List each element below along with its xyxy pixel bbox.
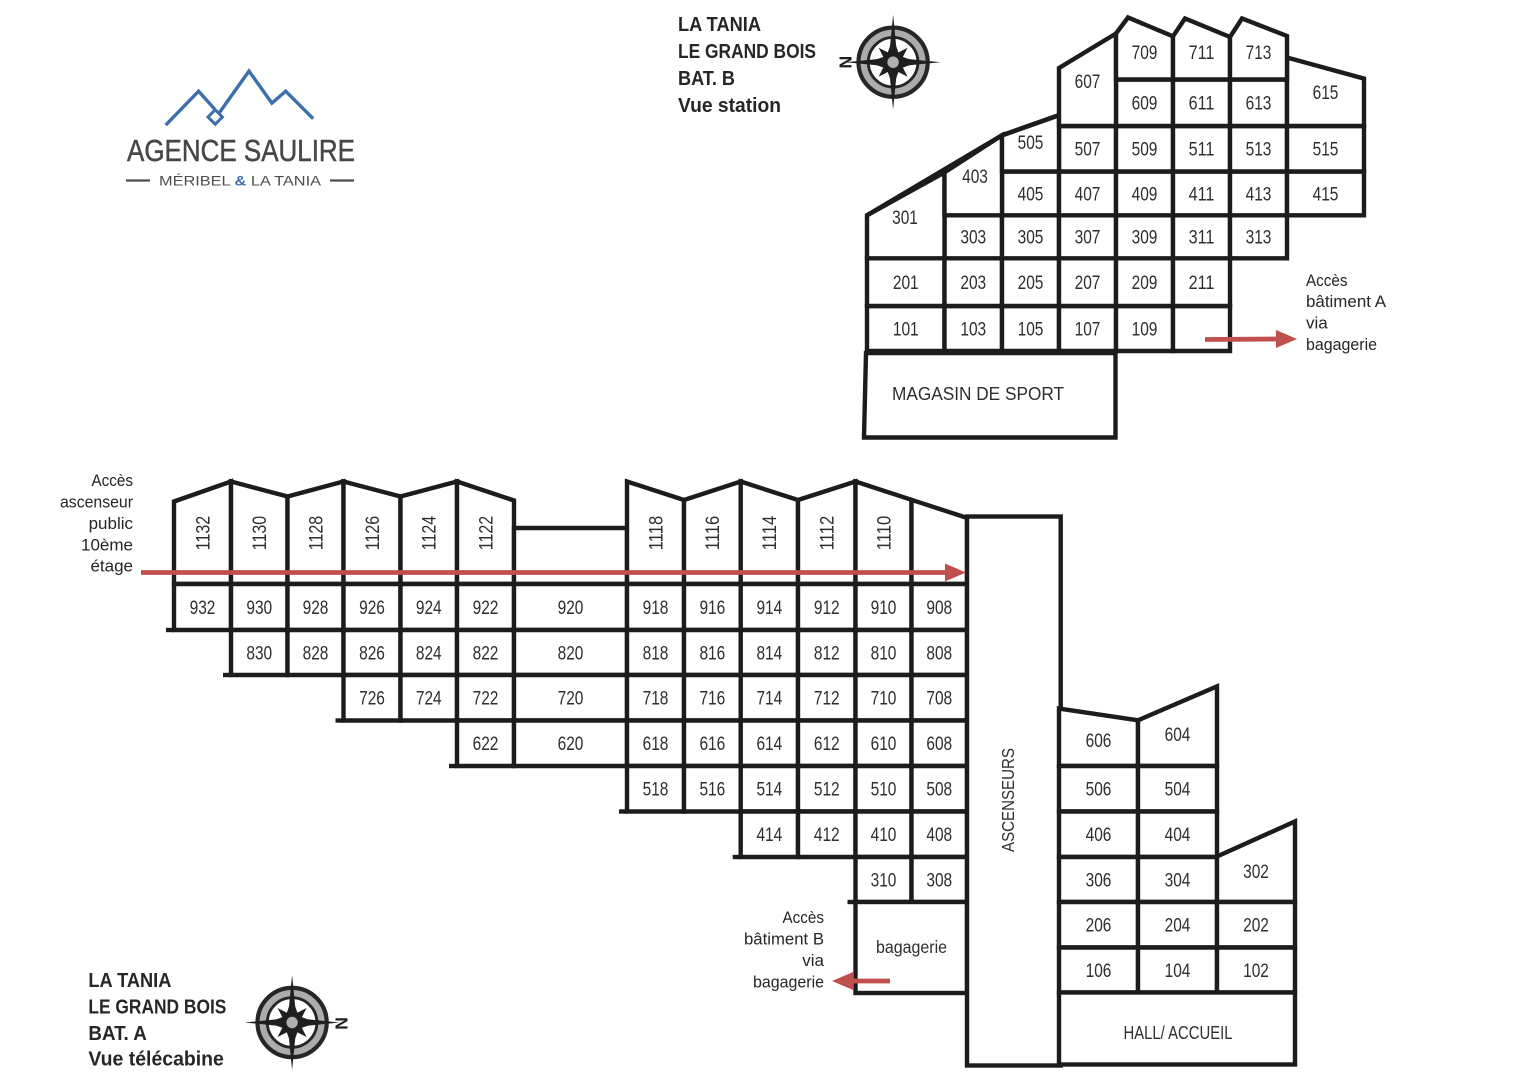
svg-text:via: via	[1306, 314, 1328, 333]
svg-text:BAT. B: BAT. B	[678, 67, 735, 90]
svg-text:508: 508	[926, 780, 952, 801]
svg-text:510: 510	[871, 780, 897, 801]
svg-text:726: 726	[359, 689, 385, 710]
svg-text:405: 405	[1018, 184, 1044, 205]
svg-text:714: 714	[756, 689, 782, 710]
svg-text:513: 513	[1246, 140, 1272, 161]
svg-text:1130: 1130	[250, 516, 271, 550]
svg-text:908: 908	[926, 598, 952, 619]
svg-text:830: 830	[246, 643, 272, 664]
svg-text:718: 718	[643, 689, 669, 710]
svg-text:609: 609	[1132, 94, 1158, 115]
svg-text:407: 407	[1075, 184, 1101, 205]
svg-text:1116: 1116	[703, 516, 724, 550]
svg-text:720: 720	[558, 689, 584, 710]
svg-text:810: 810	[871, 643, 897, 664]
svg-text:ascenseur: ascenseur	[60, 493, 133, 512]
svg-text:607: 607	[1075, 72, 1101, 93]
svg-text:LE GRAND BOIS: LE GRAND BOIS	[88, 996, 226, 1019]
svg-text:614: 614	[756, 734, 782, 755]
svg-text:LE GRAND BOIS: LE GRAND BOIS	[678, 40, 816, 63]
svg-text:301: 301	[892, 208, 918, 229]
svg-text:505: 505	[1018, 133, 1044, 154]
svg-text:412: 412	[814, 825, 840, 846]
svg-text:101: 101	[893, 319, 919, 340]
svg-text:211: 211	[1189, 273, 1215, 294]
svg-text:311: 311	[1189, 228, 1215, 249]
svg-text:410: 410	[871, 825, 897, 846]
svg-text:étage: étage	[90, 557, 133, 576]
svg-text:102: 102	[1243, 961, 1269, 982]
svg-text:202: 202	[1243, 916, 1269, 937]
svg-text:924: 924	[416, 598, 442, 619]
svg-text:507: 507	[1075, 140, 1101, 161]
svg-text:ASCENSEURS: ASCENSEURS	[998, 748, 1018, 852]
svg-text:207: 207	[1075, 273, 1101, 294]
svg-text:920: 920	[558, 598, 584, 619]
svg-text:201: 201	[893, 273, 919, 294]
svg-text:912: 912	[814, 598, 840, 619]
svg-text:622: 622	[473, 734, 499, 755]
svg-text:403: 403	[962, 167, 988, 188]
svg-text:814: 814	[756, 643, 782, 664]
svg-text:MÉRIBEL & LA TANIA: MÉRIBEL & LA TANIA	[159, 174, 321, 189]
svg-text:606: 606	[1086, 731, 1112, 752]
svg-text:724: 724	[416, 689, 442, 710]
svg-text:828: 828	[303, 643, 329, 664]
svg-text:914: 914	[756, 598, 782, 619]
svg-text:305: 305	[1018, 228, 1044, 249]
svg-text:10ème: 10ème	[81, 536, 133, 555]
svg-text:309: 309	[1132, 228, 1158, 249]
svg-text:N: N	[332, 1017, 352, 1030]
svg-text:511: 511	[1189, 140, 1215, 161]
svg-text:bâtiment A: bâtiment A	[1306, 292, 1387, 311]
svg-text:611: 611	[1189, 94, 1215, 115]
svg-text:616: 616	[699, 734, 725, 755]
svg-text:Vue télécabine: Vue télécabine	[88, 1048, 224, 1071]
svg-text:506: 506	[1086, 780, 1112, 801]
svg-text:310: 310	[871, 870, 897, 891]
svg-text:515: 515	[1313, 140, 1339, 161]
svg-text:1126: 1126	[363, 516, 384, 550]
svg-text:404: 404	[1165, 825, 1191, 846]
svg-text:105: 105	[1018, 319, 1044, 340]
svg-text:1114: 1114	[760, 515, 781, 550]
svg-text:bagagerie: bagagerie	[1306, 335, 1377, 354]
svg-text:106: 106	[1086, 961, 1112, 982]
svg-text:910: 910	[871, 598, 897, 619]
svg-text:612: 612	[814, 734, 840, 755]
svg-text:bagagerie: bagagerie	[753, 973, 824, 992]
svg-text:509: 509	[1132, 140, 1158, 161]
svg-text:313: 313	[1246, 228, 1272, 249]
svg-text:604: 604	[1165, 725, 1191, 746]
svg-text:722: 722	[473, 689, 499, 710]
svg-text:BAT. A: BAT. A	[88, 1022, 147, 1045]
svg-text:512: 512	[814, 780, 840, 801]
svg-text:818: 818	[643, 643, 669, 664]
svg-text:709: 709	[1132, 43, 1158, 64]
svg-text:1128: 1128	[306, 516, 327, 550]
svg-text:308: 308	[926, 870, 952, 891]
svg-text:1112: 1112	[818, 516, 839, 550]
svg-text:608: 608	[926, 734, 952, 755]
svg-text:1122: 1122	[476, 516, 497, 550]
svg-text:518: 518	[643, 780, 669, 801]
svg-text:613: 613	[1246, 94, 1272, 115]
svg-text:824: 824	[416, 643, 442, 664]
svg-text:514: 514	[756, 780, 782, 801]
svg-text:822: 822	[473, 643, 499, 664]
svg-text:107: 107	[1075, 319, 1101, 340]
svg-text:LA TANIA: LA TANIA	[88, 969, 171, 992]
svg-text:411: 411	[1189, 184, 1215, 205]
svg-text:930: 930	[246, 598, 272, 619]
svg-text:406: 406	[1086, 825, 1112, 846]
svg-text:1110: 1110	[874, 516, 895, 550]
svg-text:304: 304	[1165, 870, 1191, 891]
svg-text:620: 620	[558, 734, 584, 755]
svg-text:203: 203	[960, 273, 986, 294]
svg-text:Accès: Accès	[783, 908, 825, 927]
svg-text:710: 710	[871, 689, 897, 710]
svg-text:928: 928	[303, 598, 329, 619]
svg-text:826: 826	[359, 643, 385, 664]
svg-text:808: 808	[926, 643, 952, 664]
svg-text:1132: 1132	[193, 516, 214, 550]
svg-text:820: 820	[558, 643, 584, 664]
svg-text:932: 932	[190, 598, 216, 619]
svg-text:209: 209	[1132, 273, 1158, 294]
svg-text:413: 413	[1246, 184, 1272, 205]
svg-text:615: 615	[1313, 83, 1339, 104]
svg-text:1124: 1124	[420, 515, 441, 550]
svg-text:bagagerie: bagagerie	[876, 937, 947, 957]
svg-text:307: 307	[1075, 228, 1101, 249]
svg-text:926: 926	[359, 598, 385, 619]
svg-text:610: 610	[871, 734, 897, 755]
svg-text:504: 504	[1165, 780, 1191, 801]
svg-text:MAGASIN DE SPORT: MAGASIN DE SPORT	[892, 384, 1064, 404]
svg-text:306: 306	[1086, 870, 1112, 891]
svg-text:public: public	[89, 514, 134, 533]
svg-text:816: 816	[699, 643, 725, 664]
svg-text:916: 916	[699, 598, 725, 619]
svg-text:712: 712	[814, 689, 840, 710]
svg-text:303: 303	[960, 228, 986, 249]
svg-text:812: 812	[814, 643, 840, 664]
svg-text:Accès: Accès	[1306, 271, 1348, 290]
svg-text:922: 922	[473, 598, 499, 619]
svg-text:HALL/ ACCUEIL: HALL/ ACCUEIL	[1124, 1023, 1233, 1043]
svg-text:409: 409	[1132, 184, 1158, 205]
svg-text:N: N	[836, 56, 856, 69]
svg-text:618: 618	[643, 734, 669, 755]
svg-text:206: 206	[1086, 916, 1112, 937]
svg-text:via: via	[802, 951, 824, 970]
svg-text:104: 104	[1165, 961, 1191, 982]
svg-text:711: 711	[1189, 43, 1215, 64]
svg-text:408: 408	[926, 825, 952, 846]
svg-text:414: 414	[756, 825, 782, 846]
svg-text:109: 109	[1132, 319, 1158, 340]
svg-text:302: 302	[1243, 862, 1269, 883]
svg-text:918: 918	[643, 598, 669, 619]
svg-text:415: 415	[1313, 184, 1339, 205]
svg-text:205: 205	[1018, 273, 1044, 294]
svg-text:LA TANIA: LA TANIA	[678, 13, 761, 36]
svg-text:Vue station: Vue station	[678, 94, 781, 117]
svg-text:1118: 1118	[646, 516, 667, 550]
svg-text:204: 204	[1165, 916, 1191, 937]
svg-text:516: 516	[699, 780, 725, 801]
svg-text:AGENCE SAULIRE: AGENCE SAULIRE	[127, 134, 355, 168]
svg-text:716: 716	[699, 689, 725, 710]
svg-text:bâtiment B: bâtiment B	[744, 930, 824, 949]
svg-text:713: 713	[1246, 43, 1272, 64]
svg-text:Accès: Accès	[92, 471, 134, 490]
svg-text:103: 103	[960, 319, 986, 340]
svg-text:708: 708	[926, 689, 952, 710]
